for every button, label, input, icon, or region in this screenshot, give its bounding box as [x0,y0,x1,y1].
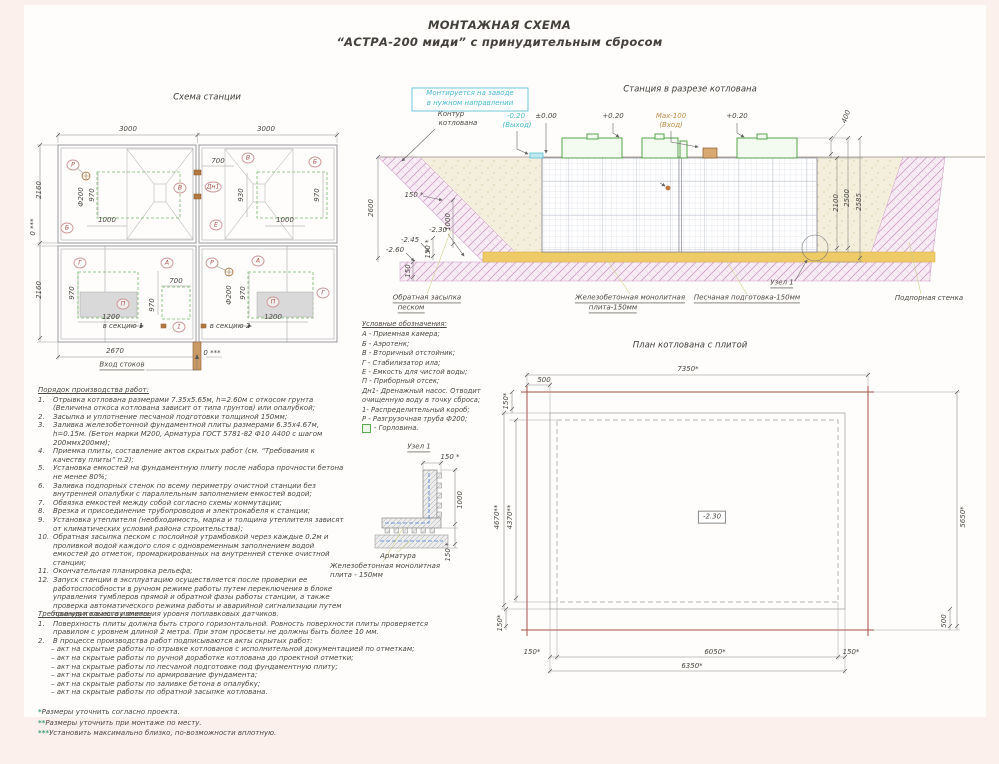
component-mark: Е [210,220,223,231]
dim-label: 150 * [404,192,423,200]
dim-label: 500 [941,614,949,627]
dim-label: 1200 [102,314,120,322]
dim-label: 700 [211,158,224,166]
dim-label: 4670** [494,505,502,530]
pit-plan-view: План котлована с плитой7350*500150*4670*… [480,335,995,700]
component-mark: Б [61,223,74,234]
legend-title: Условные обозначения: [362,320,484,329]
footnote: ** Размеры уточнить при монтаже по месту… [38,718,458,729]
dim-label: Ф200 [226,285,234,304]
dim-label: Узел 1 [407,443,430,452]
work-order-item: 8.Врезка и присоединение трубопроводов и… [38,507,350,516]
footnote: *** Установить максимально близко, по-во… [38,728,458,739]
component-mark: Дн1 [205,182,222,193]
work-order-title: Порядок производства работ: [38,386,350,395]
component-mark: Р [206,258,219,269]
dim-label: ±0.00 [535,113,556,121]
dim-label: Ф200 [78,187,86,206]
footnote-items: * Размеры уточнить согласно проекта.** Р… [38,707,458,739]
dim-label: 970 [149,298,157,311]
dim-label: 3000 [119,126,137,134]
view-title: План котлована с плитой [633,341,747,350]
dim-label: -2.30 [698,511,726,524]
dim-label: 930 [238,188,246,201]
dim-label: плита-150мм [589,304,637,313]
dim-label: 150 * [440,454,459,462]
component-mark: П [267,297,280,308]
legend-item: Дн1- Дренажный насос. Отводит [362,387,484,396]
dim-label: 700 [169,278,182,286]
dim-label: -2.30 [429,227,447,235]
dim-label: -2.45 [401,237,419,245]
dim-label: 2500 [844,189,852,207]
outlet-pipe [530,153,543,158]
dimension-lines [501,372,960,674]
dim-label: Мах-100 [656,113,686,121]
legend-item: А - Приемная камера; [362,330,484,339]
dim-label: 970 [69,286,77,299]
leader-lines [77,168,248,370]
station-plan-drawing [30,85,360,385]
plate-quality-notes: Требования к качеству плиты: 1.Поверхнос… [38,610,446,697]
footnote: * Размеры уточнить согласно проекта. [38,707,458,718]
component-mark: 1 [173,322,186,333]
footnotes: * Размеры уточнить согласно проекта.** Р… [38,707,458,739]
hidden-works-act-item: – акт на скрытые работы по песчаной подг… [51,663,446,672]
dim-label: в секцию 2 [210,323,251,331]
dim-label: Узел 1 [770,279,793,288]
work-order-item: 11.Окончательная планировка рельефа; [38,567,350,576]
dim-label: в секцию 1 [103,323,144,331]
component-mark: А [252,256,265,267]
dim-label: 7350* [677,366,698,374]
dim-label: 150 * [445,542,453,561]
drawing-title-line2: “АСТРА-200 миди” с принудительным сбросо… [0,34,999,51]
hidden-works-act-item: – акт на скрытые работы по обратной засы… [51,688,446,697]
dim-label: 0 *** [203,350,220,358]
legend-item: очищенную воду в точку сброса; [362,396,484,405]
dim-label: Арматура [380,553,416,561]
work-order-item: 9.Установка утеплителя (необходимость, м… [38,516,350,533]
station-plan-view: Схема станции3000300021600 ***2160РБВФ20… [30,85,360,385]
dim-label: 6350* [681,663,702,671]
legend-item: Р - Разгрузочная труба Ф200; [362,415,484,424]
view-title: Схема станции [173,93,241,102]
quality-title: Требования к качеству плиты: [38,610,446,619]
work-order-item: 4.Приемка плиты, составление актов скрыт… [38,447,350,464]
dim-label: 6050* [704,649,725,657]
dim-label: 500 [537,377,550,385]
dim-label: 2670 [106,348,124,356]
dim-label: котлована [439,120,478,128]
pipe-fittings [82,170,233,370]
dim-label: 4370** [507,505,515,530]
component-mark: В [174,183,187,194]
concrete-wall-and-slab [375,470,448,548]
component-mark: Р [67,160,80,171]
work-order-item: 1.Отрывка котлована размерами 7.35х5.65м… [38,396,350,413]
hidden-works-act-item: – акт на скрытые работы по заливке бетон… [51,680,446,689]
dim-label: песком [398,304,425,313]
dim-label: Подпорная стенка [895,295,963,303]
hidden-works-act-item: – акт на скрытые работы по армирование ф… [51,671,446,680]
dim-label: 150* [843,649,860,657]
dim-label: 150* [524,649,541,657]
retaining-wall-hatch [400,262,930,281]
hidden-works-act-item: – акт на скрытые работы по отрывке котло… [51,645,446,654]
inlet-box [703,148,717,158]
dim-label: 2600 [368,199,376,217]
work-order-item: 6.Заливка подпорных стенок по всему пери… [38,482,350,499]
dim-label: 2585 [856,193,864,211]
pit-section-view: Станция в разрезе котлованаМонтируется н… [365,80,990,320]
drawing-sheet-page: МОНТАЖНАЯ СХЕМА “АСТРА-200 миди” с прину… [0,0,999,764]
component-mark: П [117,299,130,310]
quality-items: 1.Поверхность плиты должна быть строго г… [38,620,446,646]
work-order-item: 10.Обратная засыпка песком с послойной у… [38,533,350,567]
legend-item: 1- Распределительный короб; [362,406,484,415]
dim-label: Монтируется на заводе [426,90,513,98]
dim-label: (Вход) [659,122,683,130]
legend-item: Е - Емкость для чистой воды; [362,368,484,377]
dim-label: 970 [89,188,97,201]
component-mark: Г [317,288,330,299]
dim-label: Песчаная подготовка-150мм [694,294,800,303]
dim-label: 970 [240,286,248,299]
quality-sub-items: – акт на скрытые работы по отрывке котло… [38,645,446,697]
dim-label: 2160 [36,281,44,299]
dim-label: Контур [438,111,465,119]
work-order-items: 1.Отрывка котлована размерами 7.35х5.65м… [38,396,350,619]
dim-label: 3000 [257,126,275,134]
dim-label: +0.20 [726,113,747,121]
legend: Условные обозначения: А - Приемная камер… [362,320,484,434]
hidden-works-act-item: – акт на скрытые работы по ручной дорабо… [51,654,446,663]
dim-label: 2100 [833,194,841,212]
work-order-item: 7.Обвязка емкостей между собой согласно … [38,499,350,508]
tank-body [542,158,828,261]
dim-label: 150* [497,615,505,632]
legend-item: П - Приборный отсек; [362,377,484,386]
dim-label: 150 [405,264,413,277]
component-mark: А [161,258,174,269]
dim-label: 5650* [960,506,968,527]
dim-label: 150* [503,393,511,410]
quality-item: 2.В процессе производства работ подписыв… [38,637,446,646]
dim-label: -0.20 [507,113,525,121]
legend-item: Г - Стабилизатор ила; [362,359,484,368]
dim-label: Вход стоков [99,361,144,370]
component-mark: В [242,153,255,164]
drawing-title: МОНТАЖНАЯ СХЕМА “АСТРА-200 миди” с прину… [0,17,999,52]
work-order-item: 2.Засыпка и уплотнение песчаной подготов… [38,413,350,422]
dim-label: 0 *** [30,218,38,235]
neck-square-icon [362,424,371,433]
dim-label: 150 * [425,239,433,258]
dim-label: 970 [314,188,322,201]
dim-label: 1200 [264,314,282,322]
pit-plan-drawing [480,335,995,700]
dim-label: Обратная засыпка [393,294,461,303]
work-order-item: 5.Установка емкостей на фундаментную пли… [38,464,350,481]
dim-label: 1000 [276,217,294,225]
work-order-item: 3.Заливка железобетонной фундаментной пл… [38,421,350,447]
legend-item: - Горловина. [362,424,484,433]
work-order-notes: Порядок производства работ: 1.Отрывка ко… [38,386,350,619]
legend-item: В - Вторичный отстойник; [362,349,484,358]
dim-label: -2.60 [386,247,404,255]
legend-item: Б - Аэротенк; [362,340,484,349]
dim-label: 2160 [36,181,44,199]
dim-label: (Выход) [502,122,531,130]
drawing-title-line1: МОНТАЖНАЯ СХЕМА [0,17,999,34]
dim-label: +0.20 [602,113,623,121]
dim-label: 1000 [98,217,116,225]
tank-lids [562,134,797,158]
quality-item: 1.Поверхность плиты должна быть строго г… [38,620,446,637]
sand-bed-layer [483,252,935,262]
component-mark: Б [309,157,322,168]
legend-items: А - Приемная камера;Б - Аэротенк;В - Вто… [362,330,484,433]
dim-label: 1000 [457,491,465,509]
view-title: Станция в разрезе котлована [623,85,757,94]
component-mark: Г [74,258,87,269]
dim-label: Железобетонная монолитная [575,294,685,303]
dim-label: в нужном направлении [427,100,514,108]
